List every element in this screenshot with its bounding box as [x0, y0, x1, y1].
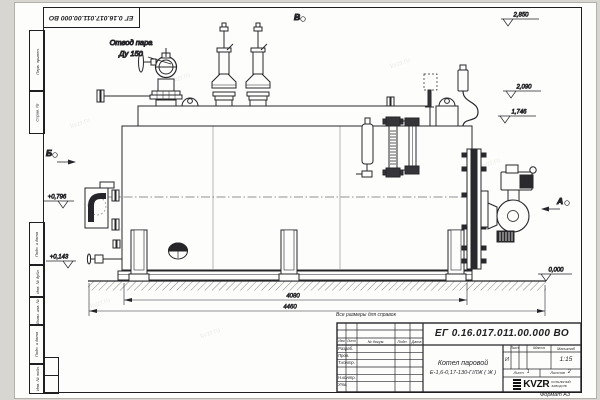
- titleblock-scale-value: 1:15: [551, 352, 581, 369]
- company-logo: KVZR КОТЕЛЬНЫЙ ЗАВОД РФ: [503, 377, 581, 392]
- frame-corner-box: [43, 357, 59, 394]
- titleblock-row-utv: Утв.: [338, 382, 360, 389]
- titleblock-scale-label: Масштаб: [551, 345, 581, 352]
- sheet-label: Лист: [513, 371, 523, 375]
- logo-bars-icon: [513, 379, 521, 391]
- frame-col-podp-data-1: Подп. и дата: [29, 222, 45, 266]
- sheets-label: Листов: [550, 371, 565, 375]
- logo-sub-line2: ЗАВОД РФ: [551, 385, 570, 389]
- titleblock-doc-number: ЕГ 0.16.017.011.00.000 ВО: [423, 323, 581, 345]
- titleblock-lit-value: И: [503, 352, 511, 369]
- titleblock-lit-label: Лит.: [503, 345, 527, 352]
- frame-col-inv-dubl: Инв. № дубл.: [29, 264, 45, 298]
- titleblock-col-list: Лист: [346, 338, 357, 345]
- frame-col-sprav-no: Справ. №: [29, 90, 45, 134]
- titleblock-col-doc: № докум.: [357, 338, 395, 345]
- titleblock-row-razrab: Разраб.: [338, 346, 360, 353]
- titleblock-sheet: Лист 1: [503, 369, 540, 377]
- titleblock-row-nkontr: Н.контр.: [338, 375, 360, 382]
- product-line1: Котел паровой: [438, 360, 488, 367]
- titleblock-product-name: Котел паровой Е-1,6-0,17-130-Г/ЛЖ ( Ж ): [423, 345, 503, 392]
- titleblock-row-prov: Пров.: [338, 353, 360, 360]
- titleblock-col-podp: Подп.: [395, 338, 410, 345]
- frame-col-vzam-inv: Взам. инв. №: [29, 296, 45, 326]
- titleblock-mass-label: Масса: [527, 345, 551, 352]
- top-stamp: ЕГ 0.16.017.011.00.000 ВО: [43, 7, 140, 28]
- format-label: Формат А3: [520, 392, 590, 400]
- reference-note: Все размеры для справок: [334, 312, 398, 320]
- top-stamp-number: ЕГ 0.16.017.011.00.000 ВО: [49, 14, 133, 21]
- titleblock-col-izm: Изм: [337, 338, 346, 345]
- titleblock-sheets: Листов 2: [540, 369, 581, 377]
- logo-subtitle: КОТЕЛЬНЫЙ ЗАВОД РФ: [551, 381, 570, 388]
- divider: [44, 375, 58, 376]
- logo-text: KVZR: [523, 379, 549, 390]
- sheets-value: 2: [568, 370, 571, 375]
- titleblock-col-data: Дата: [410, 338, 423, 345]
- frame-col-perv-primen: Перв. примен.: [29, 30, 45, 92]
- titleblock-row-tkontr: Т.контр.: [338, 360, 360, 367]
- product-line2: Е-1,6-0,17-130-Г/ЛЖ ( Ж ): [430, 371, 496, 377]
- sheet-value: 1: [527, 370, 530, 375]
